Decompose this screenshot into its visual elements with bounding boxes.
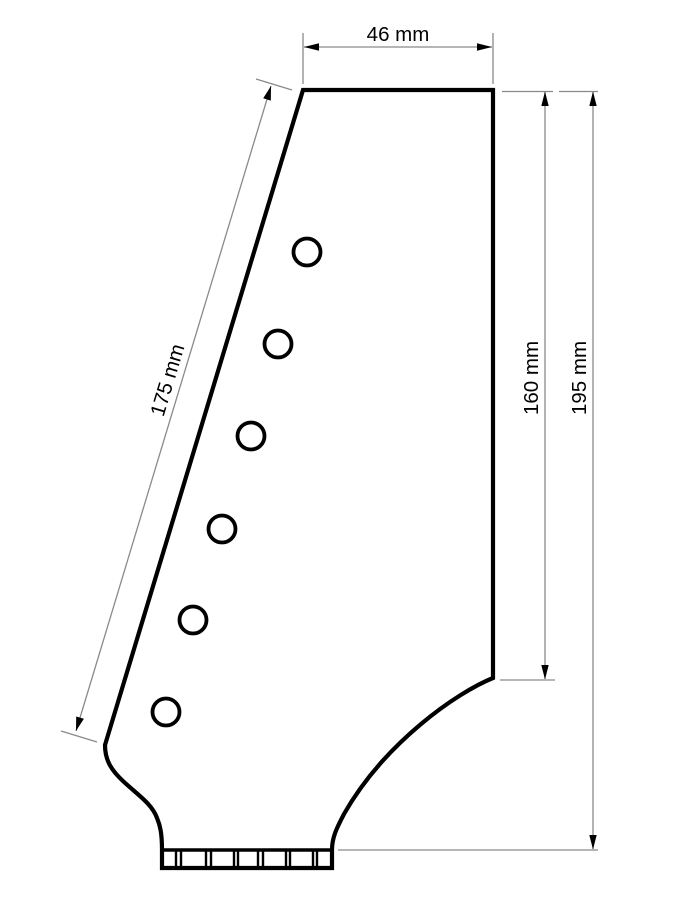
arrowhead-left: [304, 43, 319, 51]
tuner-hole-6: [153, 699, 180, 726]
dimension-label: 195 mm: [568, 341, 591, 415]
dimension-height-inner: 160 mm: [500, 92, 555, 681]
tuner-hole-4: [209, 516, 236, 543]
tuner-hole-3: [238, 423, 265, 450]
arrowhead-top: [541, 92, 548, 107]
tuner-hole-5: [180, 607, 207, 634]
dimension-left-slant: 175 mm: [61, 79, 292, 742]
dimension-label: 46 mm: [367, 23, 430, 46]
dimension-width-top: 46 mm: [303, 23, 493, 84]
arrowhead-bottom: [589, 835, 596, 850]
headstock-drawing-svg: 46 mm 175 mm 160 mm 195 mm: [0, 0, 675, 900]
technical-drawing: 46 mm 175 mm 160 mm 195 mm: [0, 0, 675, 900]
headstock-outline: [105, 90, 493, 868]
extension-tick-top: [256, 79, 292, 90]
arrowhead-bottom: [76, 717, 84, 732]
headstock-shape: [105, 90, 493, 868]
dimension-label: 160 mm: [520, 341, 543, 415]
dimension-label: 175 mm: [146, 341, 189, 419]
arrowhead-right: [477, 43, 492, 51]
tuner-hole-1: [294, 239, 321, 266]
tuner-hole-2: [265, 331, 292, 358]
arrowhead-top: [263, 86, 271, 101]
arrowhead-top: [589, 92, 596, 107]
dimension-height-overall: 195 mm: [338, 92, 598, 851]
arrowhead-bottom: [541, 665, 548, 680]
dimension-line: [76, 86, 271, 731]
nut-string-slots: [176, 850, 317, 868]
extension-tick-bottom: [61, 731, 97, 742]
